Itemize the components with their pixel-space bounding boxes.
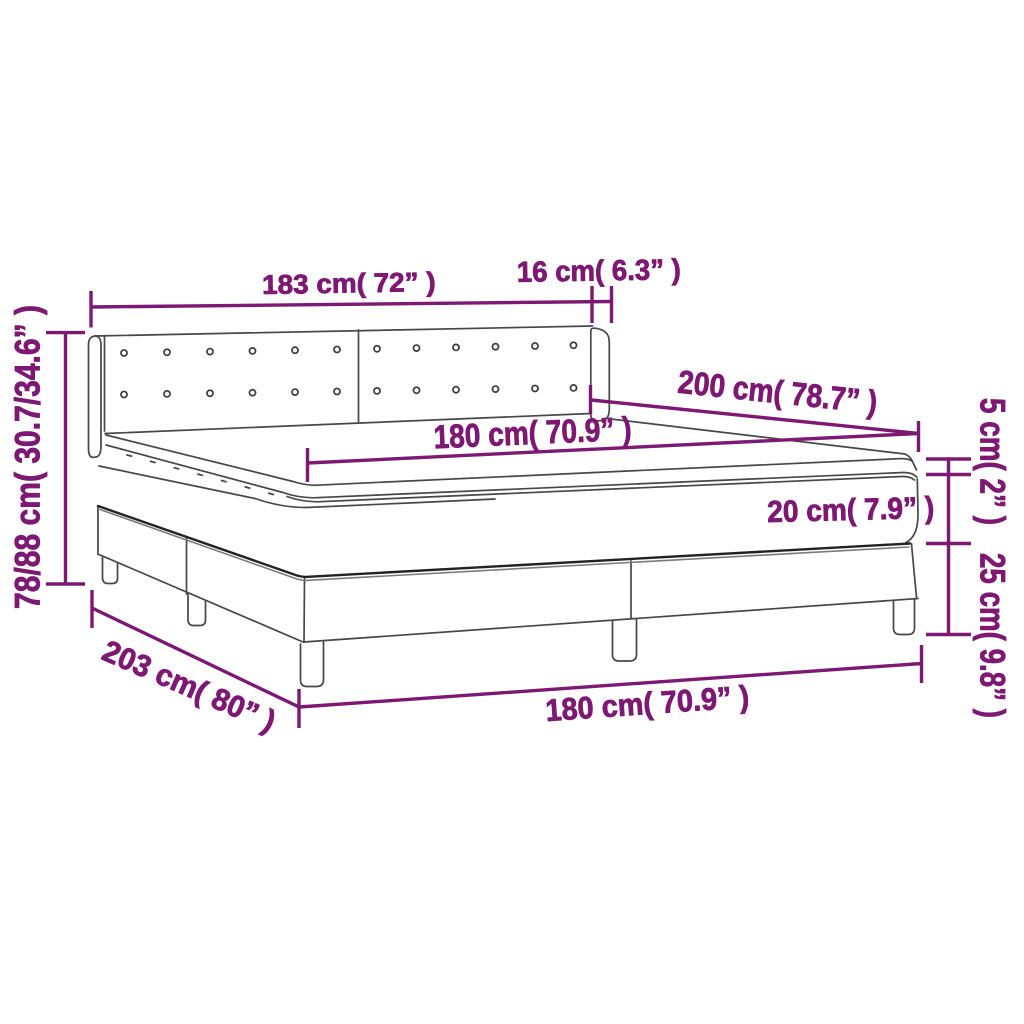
svg-text:5 cm( 2” ): 5 cm( 2” ) bbox=[973, 398, 1013, 525]
svg-text:183 cm( 72” ): 183 cm( 72” ) bbox=[262, 267, 436, 300]
svg-text:16 cm( 6.3” ): 16 cm( 6.3” ) bbox=[517, 254, 682, 289]
svg-text:78/88 cm( 30.7/34.6” ): 78/88 cm( 30.7/34.6” ) bbox=[8, 305, 48, 609]
svg-text:20 cm( 7.9” ): 20 cm( 7.9” ) bbox=[767, 491, 935, 529]
svg-text:25 cm( 9.8” ): 25 cm( 9.8” ) bbox=[973, 553, 1013, 718]
